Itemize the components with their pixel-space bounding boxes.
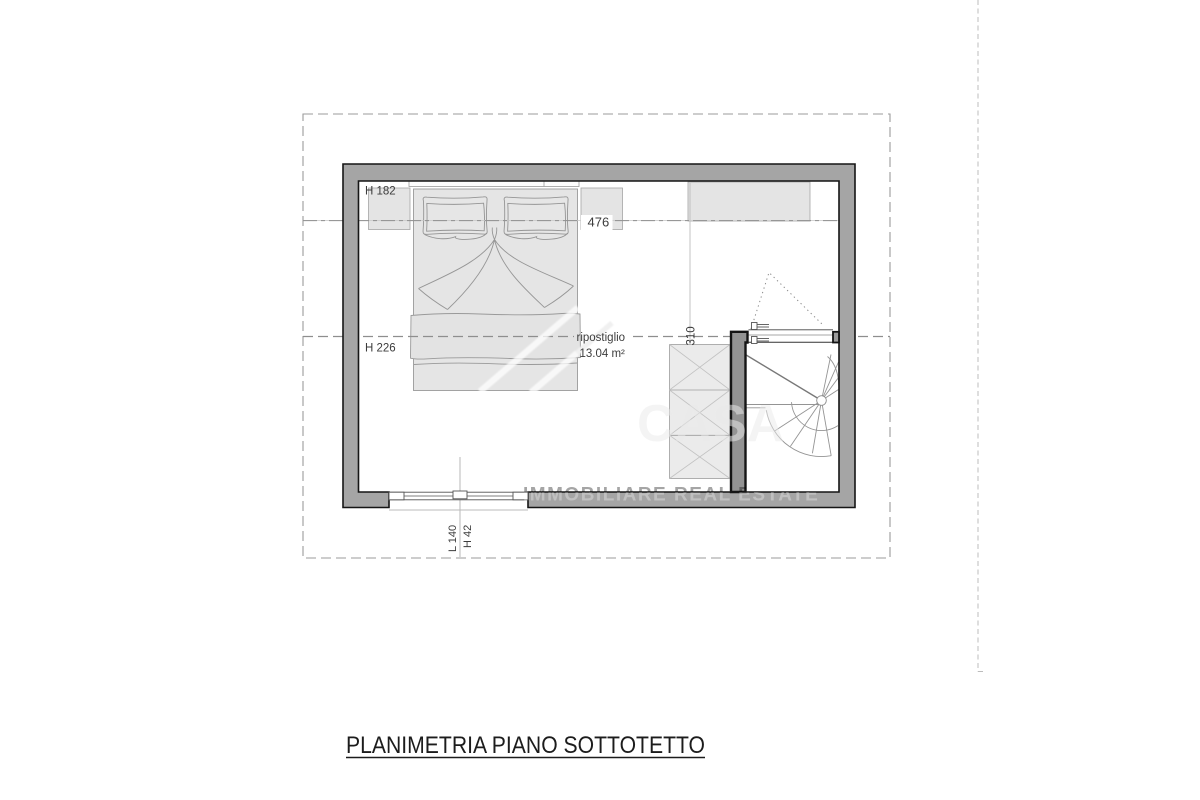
- svg-text:310: 310: [686, 326, 698, 345]
- svg-text:ripostiglio: ripostiglio: [577, 332, 626, 344]
- svg-text:476: 476: [588, 215, 610, 230]
- svg-text:CASA: CASA: [637, 395, 784, 453]
- svg-text:PLANIMETRIA PIANO SOTTOTETTO: PLANIMETRIA PIANO SOTTOTETTO: [346, 732, 705, 759]
- svg-text:H 226: H 226: [365, 343, 396, 355]
- svg-text:L 140: L 140: [447, 525, 459, 552]
- svg-text:H 42: H 42: [462, 525, 474, 548]
- svg-text:13.04 m²: 13.04 m²: [580, 348, 626, 360]
- svg-text:H 182: H 182: [365, 186, 396, 198]
